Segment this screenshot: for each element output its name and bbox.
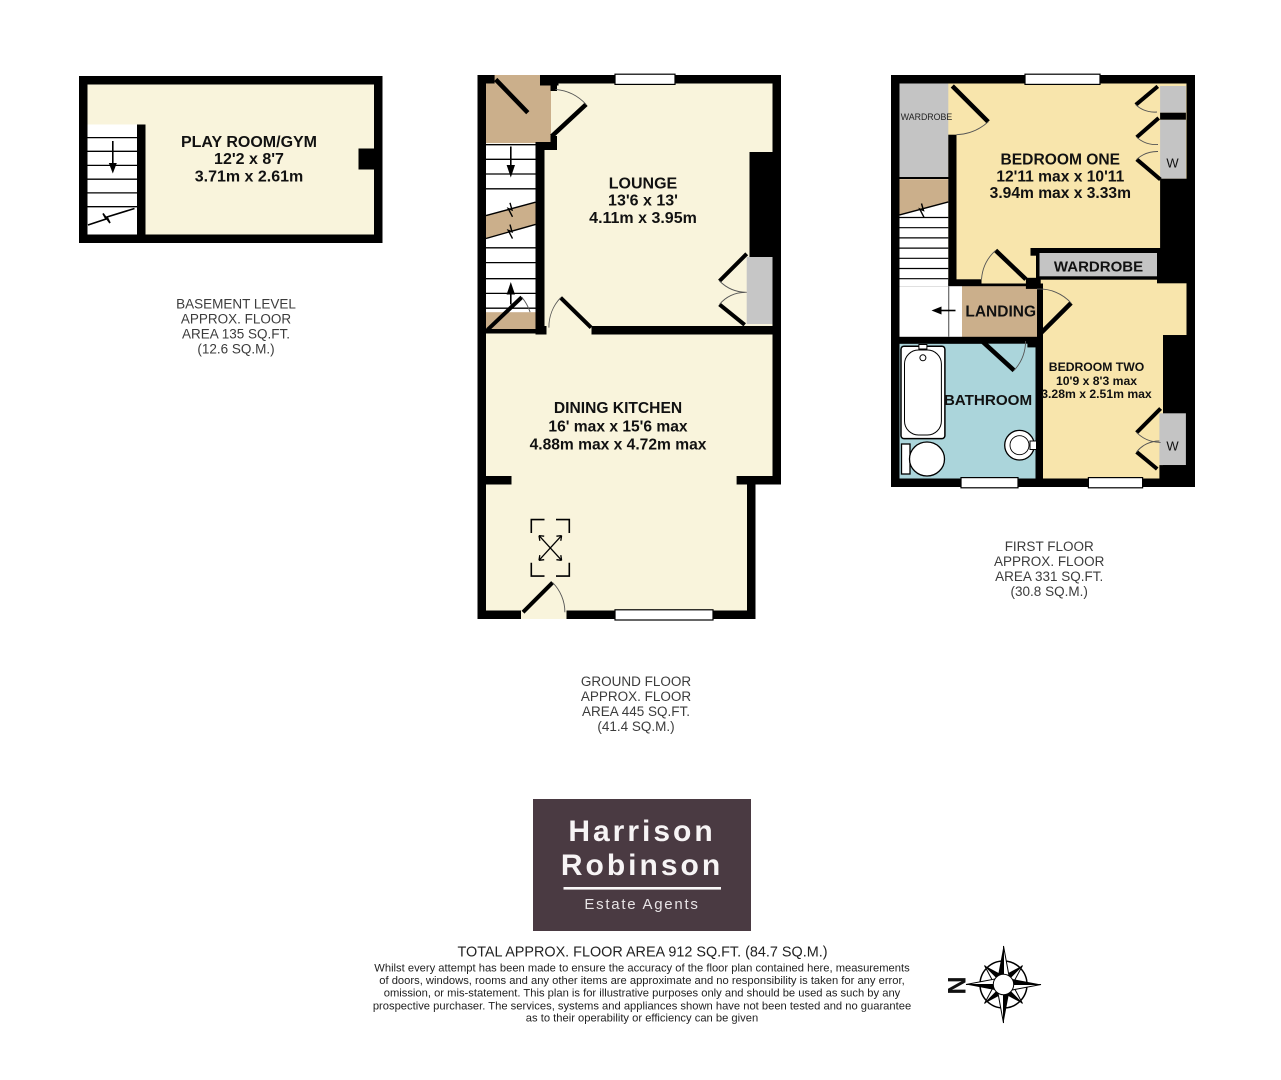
svg-text:10'9 x 8'3 max: 10'9 x 8'3 max bbox=[1056, 374, 1137, 388]
svg-text:of doors, windows, rooms and a: of doors, windows, rooms and any other i… bbox=[379, 975, 904, 987]
svg-text:GROUND FLOOR: GROUND FLOOR bbox=[581, 674, 692, 689]
svg-text:BEDROOM ONE: BEDROOM ONE bbox=[1001, 152, 1121, 169]
svg-text:PLAY ROOM/GYM: PLAY ROOM/GYM bbox=[181, 134, 317, 151]
svg-text:Robinson: Robinson bbox=[561, 849, 723, 882]
svg-text:FIRST FLOOR: FIRST FLOOR bbox=[1005, 539, 1094, 554]
svg-text:APPROX. FLOOR: APPROX. FLOOR bbox=[994, 554, 1105, 569]
svg-text:WARDROBE: WARDROBE bbox=[901, 112, 953, 122]
svg-text:12'2 x 8'7: 12'2 x 8'7 bbox=[214, 151, 284, 168]
svg-text:LOUNGE: LOUNGE bbox=[609, 176, 678, 193]
svg-text:BATHROOM: BATHROOM bbox=[944, 392, 1032, 409]
svg-text:W: W bbox=[1166, 439, 1179, 454]
svg-text:TOTAL APPROX. FLOOR AREA 912 S: TOTAL APPROX. FLOOR AREA 912 SQ.FT. (84.… bbox=[457, 945, 827, 961]
svg-text:APPROX. FLOOR: APPROX. FLOOR bbox=[181, 312, 292, 327]
svg-text:4.88m max x 4.72m max: 4.88m max x 4.72m max bbox=[530, 437, 707, 454]
svg-text:3.71m x 2.61m: 3.71m x 2.61m bbox=[195, 169, 304, 186]
svg-text:AREA 135 SQ.FT.: AREA 135 SQ.FT. bbox=[182, 327, 290, 342]
svg-text:prospective purchaser. The ser: prospective purchaser. The services, sys… bbox=[373, 1000, 911, 1012]
svg-text:Harrison: Harrison bbox=[568, 815, 715, 848]
svg-text:3.94m max x 3.33m: 3.94m max x 3.33m bbox=[990, 185, 1131, 202]
svg-text:LANDING: LANDING bbox=[965, 303, 1036, 320]
svg-text:Whilst every attempt has been: Whilst every attempt has been made to en… bbox=[374, 963, 910, 975]
svg-text:3.28m x 2.51m max: 3.28m x 2.51m max bbox=[1041, 387, 1152, 401]
svg-text:APPROX. FLOOR: APPROX. FLOOR bbox=[581, 689, 692, 704]
svg-text:WARDROBE: WARDROBE bbox=[1054, 259, 1143, 276]
svg-text:W: W bbox=[1166, 156, 1179, 171]
svg-text:as to their operability or eff: as to their operability or efficiency ca… bbox=[526, 1013, 758, 1025]
svg-text:N: N bbox=[944, 976, 972, 994]
svg-text:13'6 x 13': 13'6 x 13' bbox=[608, 193, 678, 210]
svg-text:Estate Agents: Estate Agents bbox=[584, 896, 699, 913]
svg-text:DINING KITCHEN: DINING KITCHEN bbox=[554, 400, 682, 417]
svg-text:AREA 331 SQ.FT.: AREA 331 SQ.FT. bbox=[995, 569, 1103, 584]
svg-text:BEDROOM TWO: BEDROOM TWO bbox=[1049, 360, 1144, 374]
svg-text:(30.8 SQ.M.): (30.8 SQ.M.) bbox=[1011, 584, 1088, 599]
svg-text:(41.4 SQ.M.): (41.4 SQ.M.) bbox=[597, 719, 674, 734]
svg-text:4.11m x 3.95m: 4.11m x 3.95m bbox=[589, 210, 697, 227]
svg-text:omission, or mis-statement. Th: omission, or mis-statement. This plan is… bbox=[384, 987, 901, 999]
svg-text:(12.6 SQ.M.): (12.6 SQ.M.) bbox=[197, 342, 274, 357]
svg-text:AREA 445 SQ.FT.: AREA 445 SQ.FT. bbox=[582, 704, 690, 719]
svg-text:BASEMENT LEVEL: BASEMENT LEVEL bbox=[176, 297, 296, 312]
svg-text:12'11 max x 10'11: 12'11 max x 10'11 bbox=[996, 168, 1124, 185]
svg-text:16' max x 15'6 max: 16' max x 15'6 max bbox=[548, 419, 688, 436]
